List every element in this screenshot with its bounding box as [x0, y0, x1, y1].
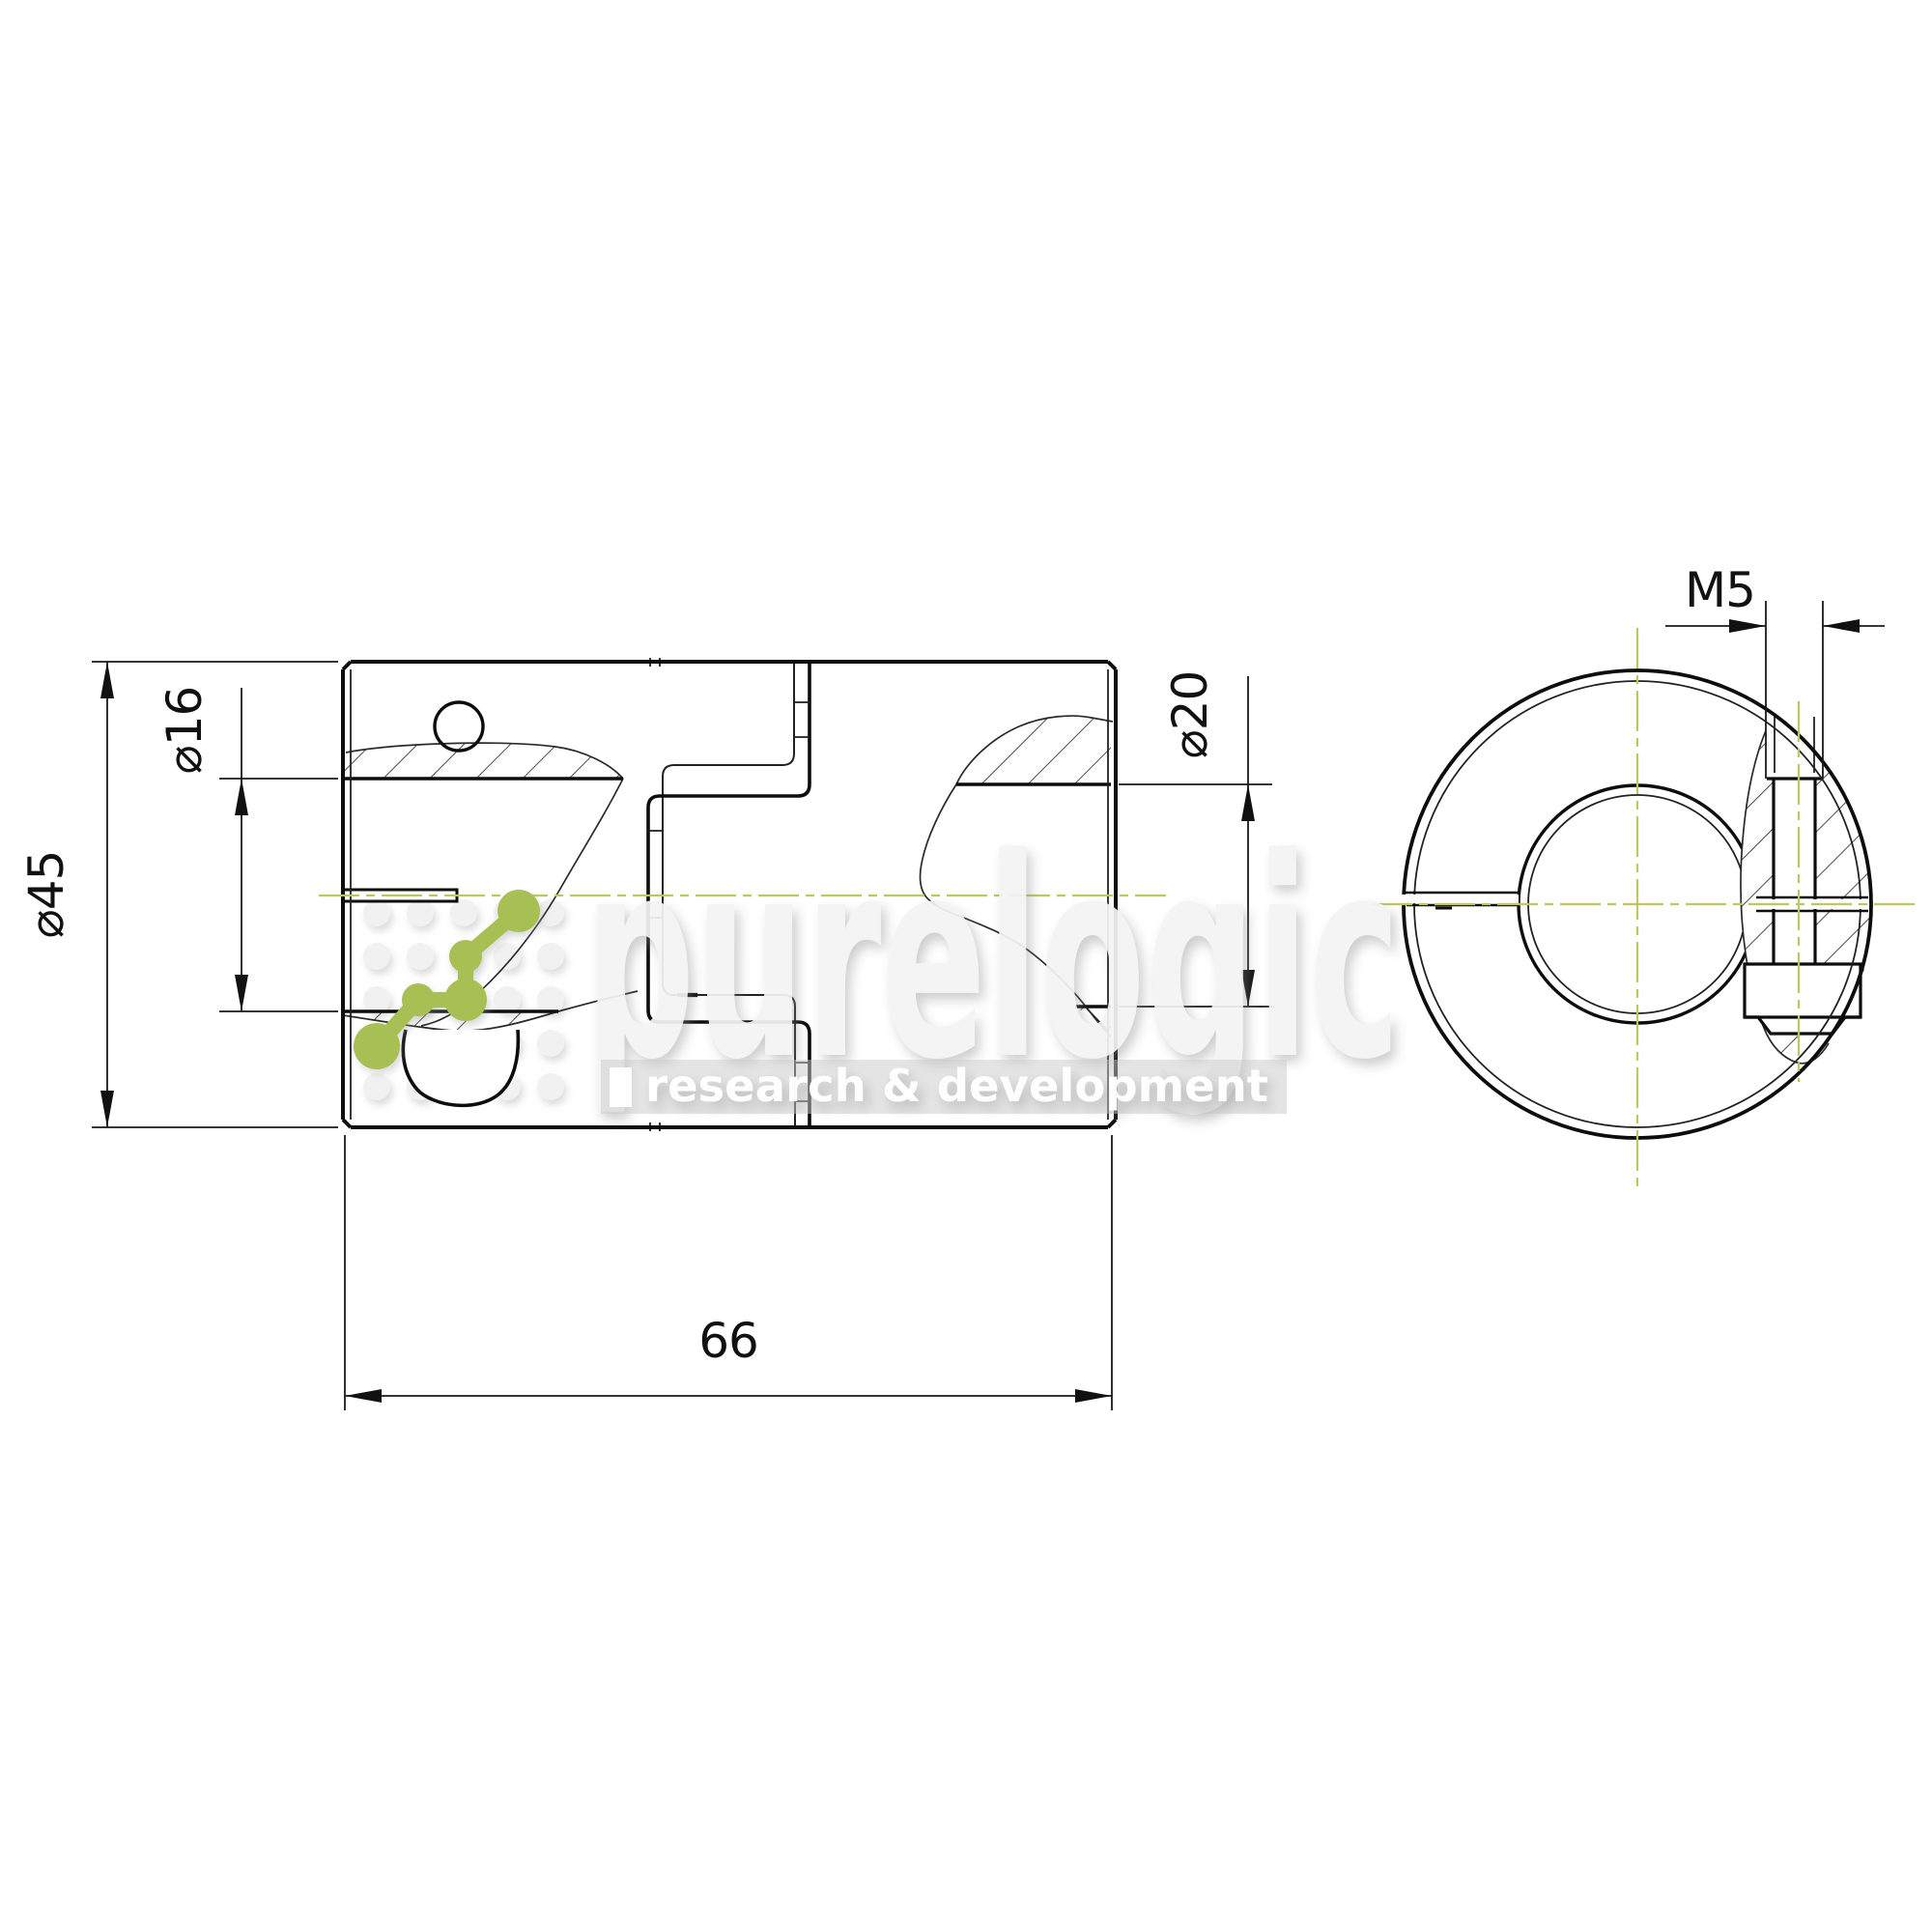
- watermark-tagline-text: research & development: [645, 1060, 1268, 1112]
- endview-left-slit: [1399, 893, 1519, 908]
- logo-dot-4: [449, 940, 482, 973]
- phi45-label: ⌀45: [18, 851, 74, 939]
- watermark-tagline-tick: [610, 1067, 632, 1107]
- clamp-screw-counterbore: [403, 1030, 518, 1105]
- logo-dot-1: [354, 1023, 400, 1069]
- logo-dot-2: [402, 983, 435, 1016]
- logo-dot-5: [497, 890, 540, 932]
- phi16-label: ⌀16: [156, 687, 213, 775]
- phi20-label: ⌀20: [1162, 671, 1218, 759]
- watermark: purelogic research & development: [584, 800, 1401, 1121]
- length-66-label: 66: [698, 1313, 758, 1369]
- m5-label: M5: [1685, 562, 1755, 618]
- logo-dot-3: [444, 979, 487, 1021]
- drawing-page: ⌀45 ⌀16 ⌀20 66: [0, 0, 1932, 1932]
- coupling-drawing-svg: ⌀45 ⌀16 ⌀20 66: [0, 0, 1932, 1932]
